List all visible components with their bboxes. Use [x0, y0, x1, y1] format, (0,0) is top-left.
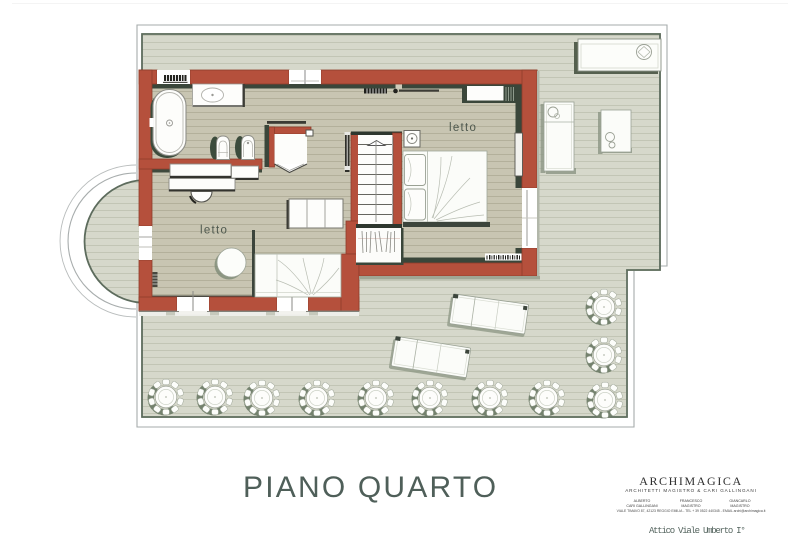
svg-text:letto: letto	[200, 225, 228, 237]
svg-text:letto: letto	[449, 122, 477, 134]
